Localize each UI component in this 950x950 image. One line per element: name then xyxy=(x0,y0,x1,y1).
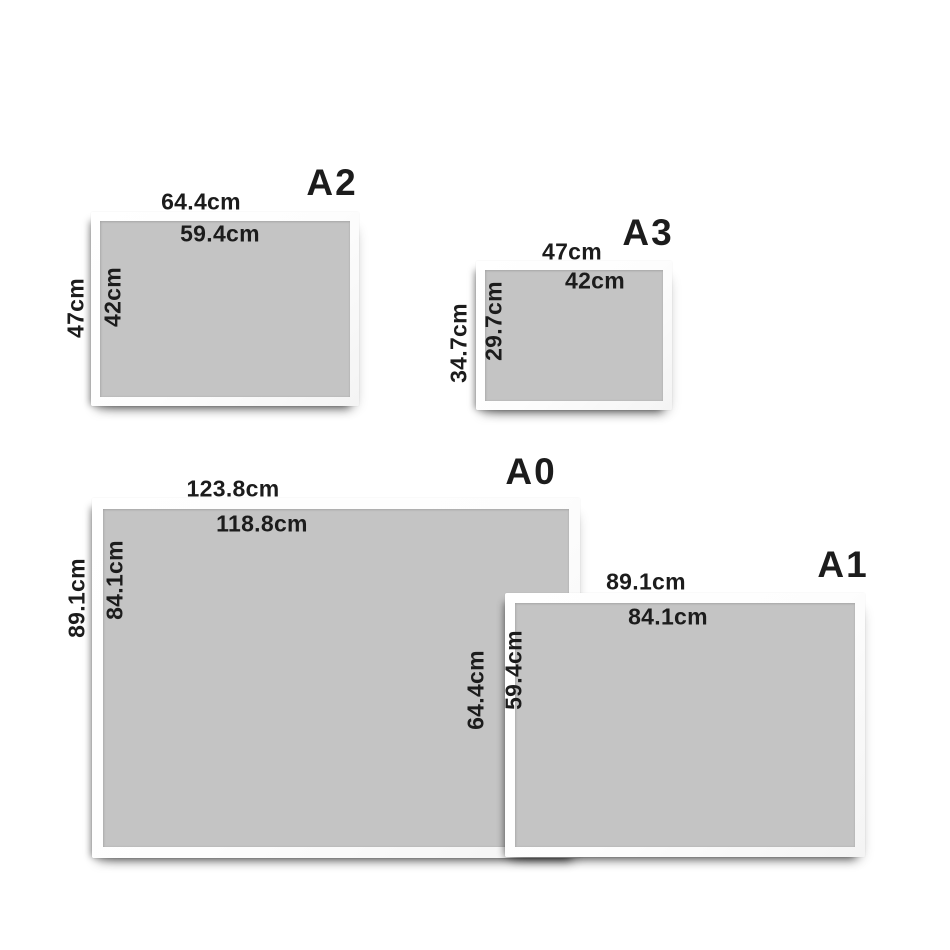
a3-inner-height-label: 29.7cm xyxy=(481,281,508,361)
a1-outer-height-label: 64.4cm xyxy=(463,650,490,730)
a0-outer-width-label: 123.8cm xyxy=(187,476,280,503)
a2-inner-height-label: 42cm xyxy=(100,267,127,327)
a1-outer-width-label: 89.1cm xyxy=(606,569,686,596)
a2-size-title: A2 xyxy=(306,162,357,204)
a3-inner-width-label: 42cm xyxy=(565,268,625,295)
a3-size-title: A3 xyxy=(622,212,673,254)
a1-inner-width-label: 84.1cm xyxy=(628,604,708,631)
panel-a1: A1 89.1cm 64.4cm 84.1cm 59.4cm xyxy=(0,0,950,950)
a1-inner-height-label: 59.4cm xyxy=(501,630,528,710)
a1-inner-print-area xyxy=(515,603,855,847)
a0-inner-height-label: 84.1cm xyxy=(102,540,129,620)
paper-size-comparison-diagram: A2 64.4cm 47cm 59.4cm 42cm A3 47cm 34.7c… xyxy=(0,0,950,950)
a2-outer-height-label: 47cm xyxy=(63,278,90,338)
a3-outer-height-label: 34.7cm xyxy=(446,303,473,383)
a2-inner-width-label: 59.4cm xyxy=(180,221,260,248)
a0-outer-height-label: 89.1cm xyxy=(64,558,91,638)
a0-inner-width-label: 118.8cm xyxy=(216,511,308,538)
a3-outer-width-label: 47cm xyxy=(542,239,602,266)
a1-size-title: A1 xyxy=(817,544,868,586)
a0-size-title: A0 xyxy=(505,451,556,493)
a2-outer-width-label: 64.4cm xyxy=(161,189,241,216)
a1-paper-sheet xyxy=(505,593,865,857)
